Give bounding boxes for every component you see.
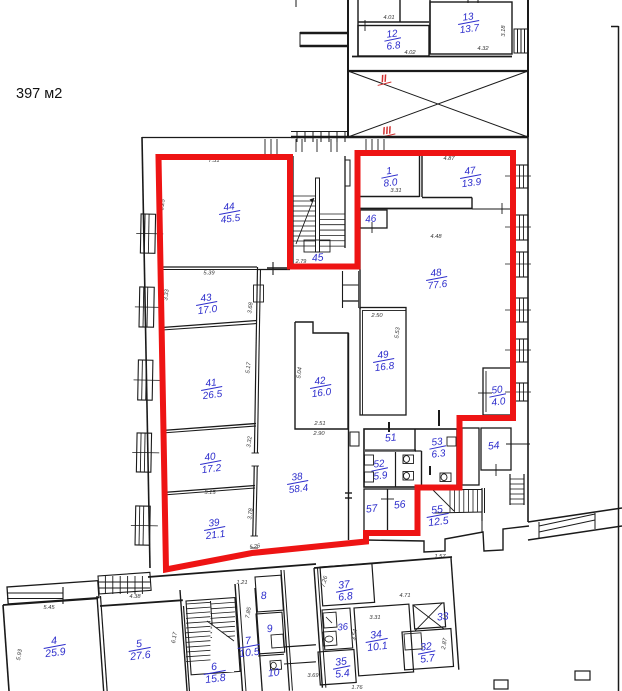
svg-text:4.71: 4.71 (399, 593, 410, 599)
svg-text:10.5: 10.5 (239, 646, 261, 660)
svg-text:15.8: 15.8 (205, 672, 227, 686)
svg-text:12.5: 12.5 (428, 515, 450, 529)
svg-text:6.8: 6.8 (386, 40, 402, 53)
svg-text:4.0: 4.0 (491, 396, 507, 409)
svg-text:36: 36 (337, 621, 349, 633)
svg-text:45: 45 (311, 251, 324, 264)
svg-text:3.31: 3.31 (390, 188, 401, 194)
svg-text:4.38: 4.38 (129, 594, 141, 600)
svg-text:3.31: 3.31 (369, 615, 380, 621)
svg-text:54: 54 (487, 439, 500, 452)
svg-text:4.01: 4.01 (383, 15, 394, 21)
svg-text:6.8: 6.8 (337, 590, 353, 604)
svg-text:1.76: 1.76 (351, 685, 363, 691)
svg-text:5.15: 5.15 (204, 490, 216, 496)
svg-text:3.69: 3.69 (307, 673, 319, 679)
svg-text:5.4: 5.4 (334, 667, 350, 681)
svg-text:5.39: 5.39 (203, 271, 215, 277)
svg-text:2.90: 2.90 (312, 431, 325, 437)
svg-text:3.18: 3.18 (501, 25, 507, 37)
svg-text:46: 46 (365, 213, 378, 225)
svg-text:4.02: 4.02 (404, 50, 416, 56)
svg-text:1.21: 1.21 (236, 580, 247, 586)
svg-text:56: 56 (393, 498, 406, 511)
svg-text:51: 51 (384, 431, 397, 444)
svg-text:5.45: 5.45 (43, 605, 55, 611)
svg-text:397 м2: 397 м2 (16, 86, 62, 102)
svg-text:4.87: 4.87 (443, 156, 455, 162)
svg-text:10.1: 10.1 (367, 640, 389, 654)
svg-text:4.48: 4.48 (430, 234, 442, 240)
svg-text:5.7: 5.7 (419, 652, 436, 666)
svg-text:6.3: 6.3 (431, 448, 447, 461)
svg-text:2.50: 2.50 (370, 313, 383, 319)
svg-text:10: 10 (267, 666, 280, 679)
svg-text:4.32: 4.32 (477, 46, 489, 52)
svg-text:33: 33 (436, 610, 449, 623)
svg-text:2.51: 2.51 (313, 421, 325, 427)
svg-text:5.9: 5.9 (373, 470, 389, 483)
